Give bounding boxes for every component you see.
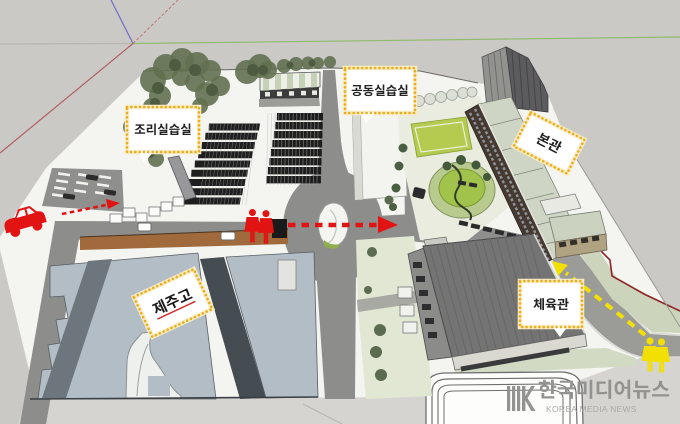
svg-text:KOREA MEDIA NEWS: KOREA MEDIA NEWS	[546, 404, 637, 414]
